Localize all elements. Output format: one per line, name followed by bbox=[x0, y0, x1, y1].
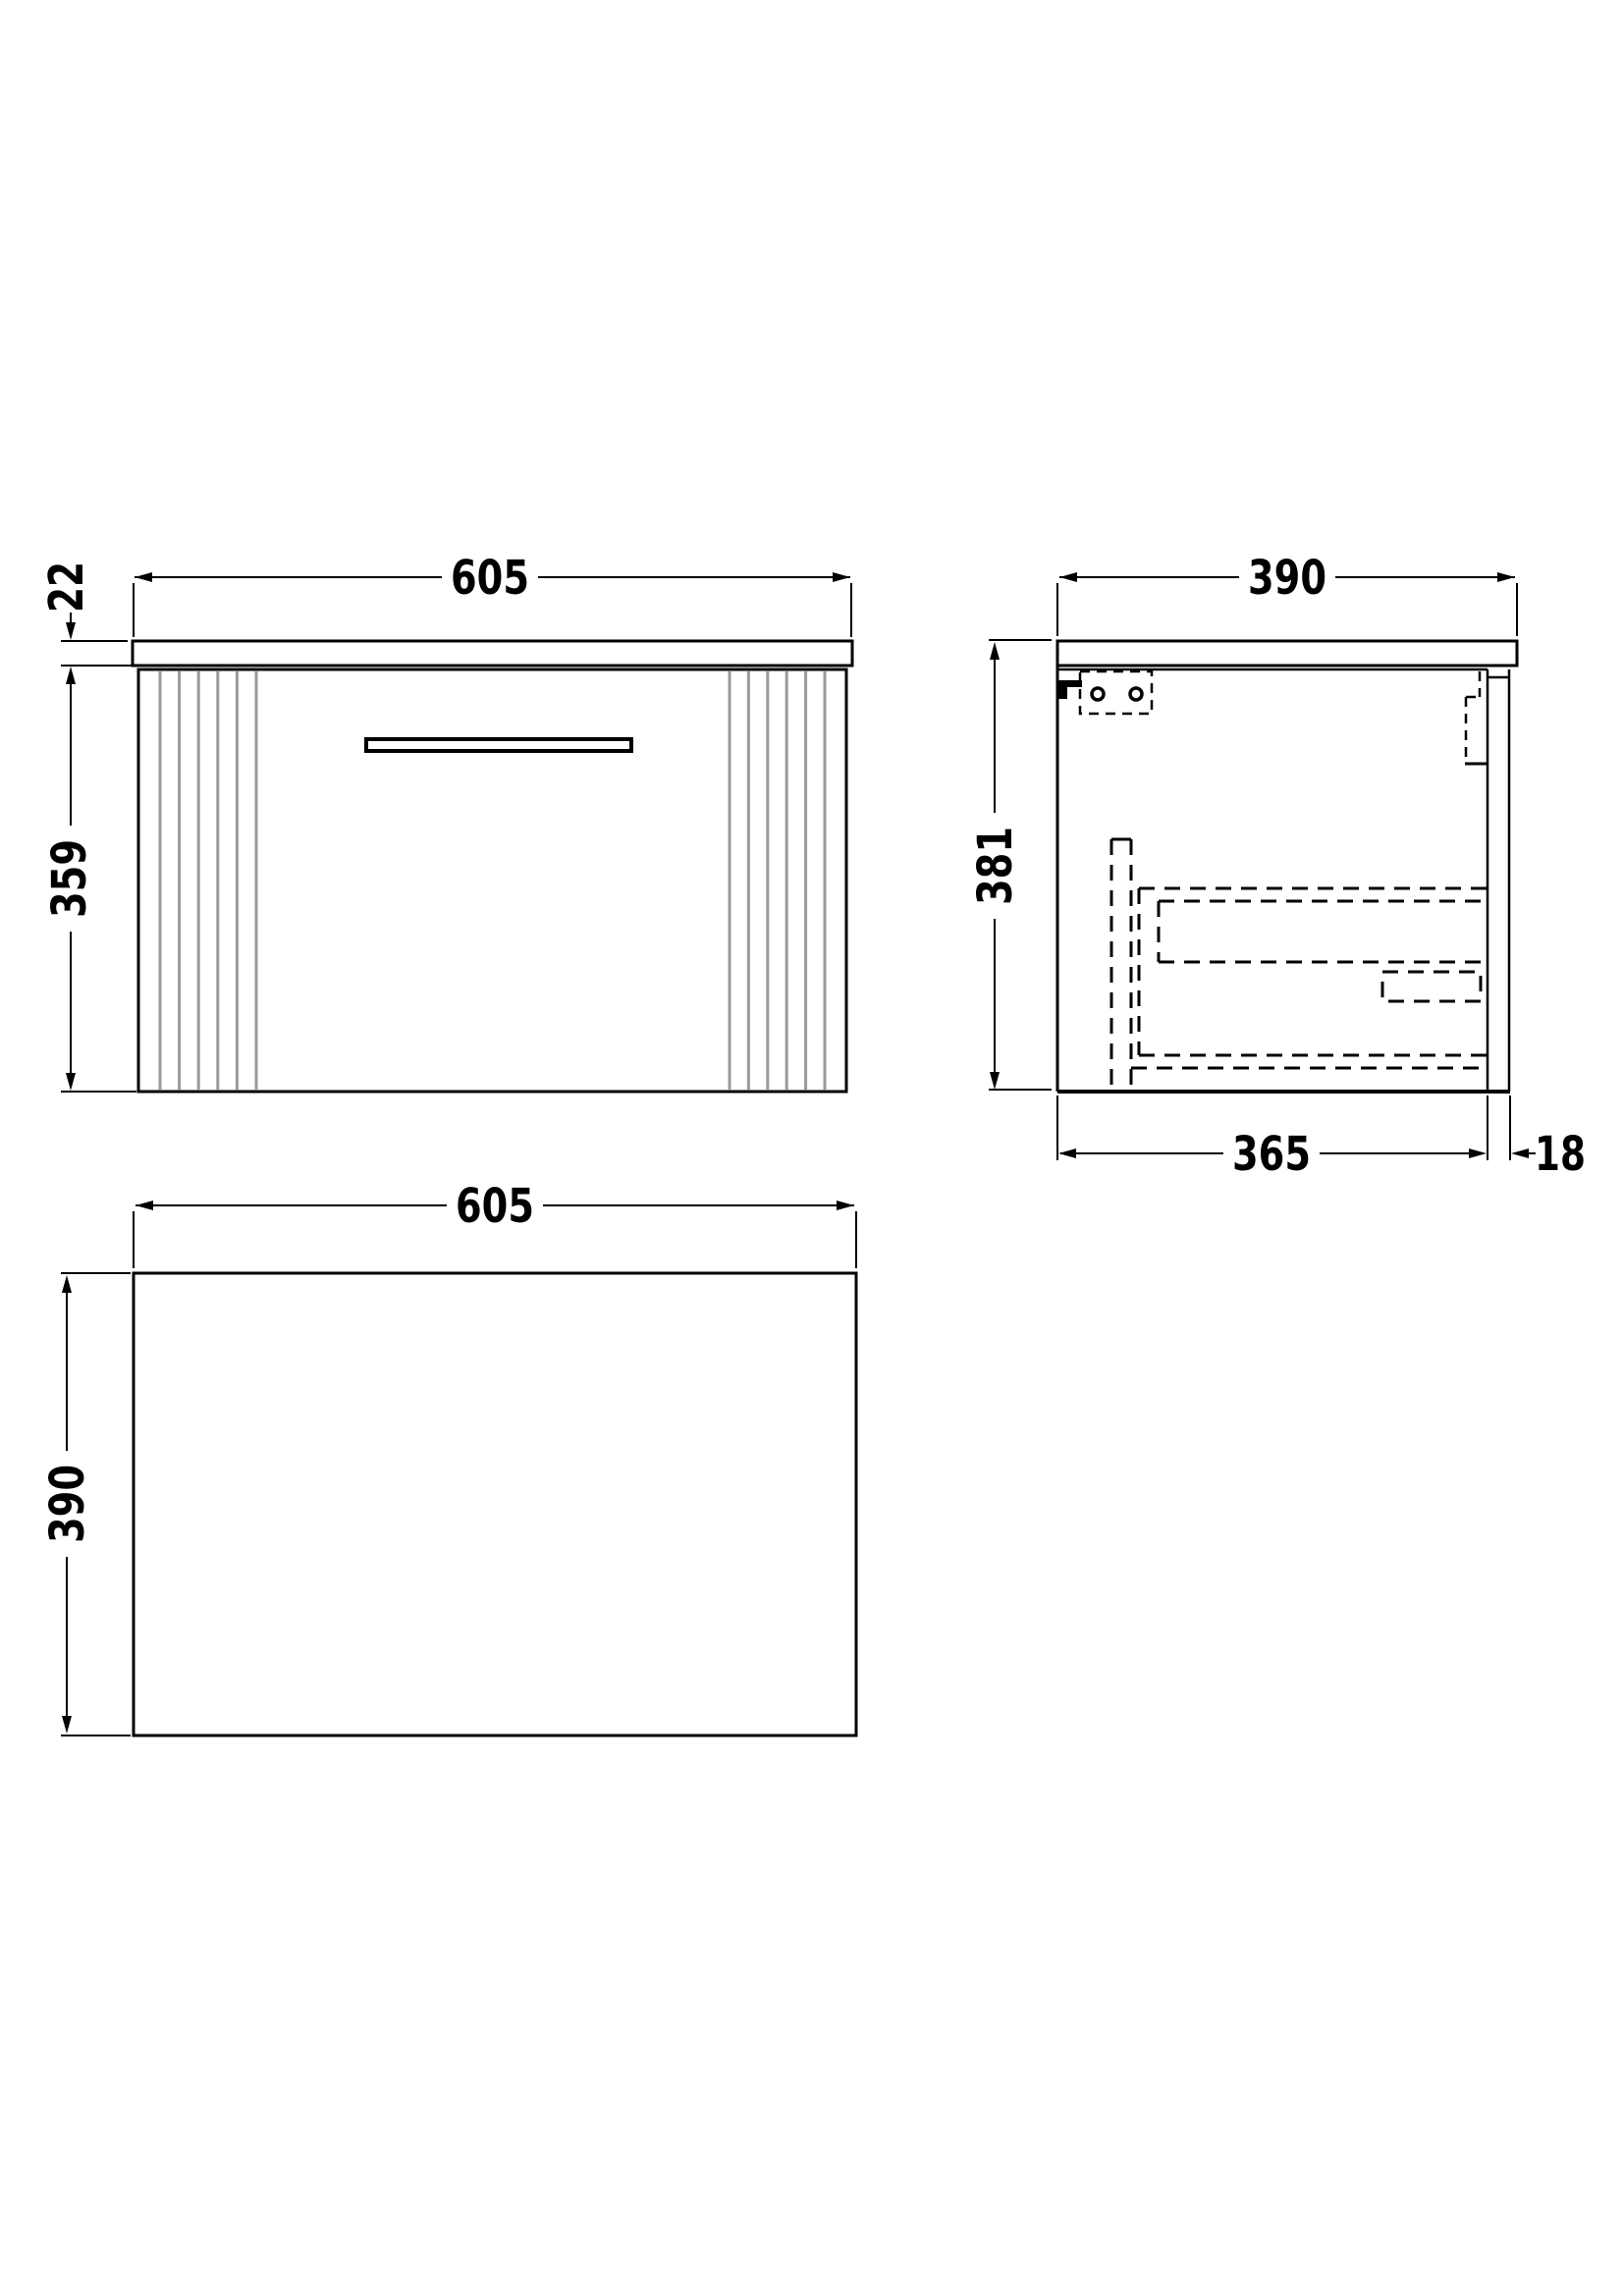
arrowhead-up bbox=[62, 1275, 72, 1293]
drawer-rail-hidden-outline bbox=[1159, 901, 1488, 962]
dim-front-worktop-thickness: 22 bbox=[39, 561, 136, 666]
runner-block-hidden-outline bbox=[1382, 972, 1481, 1001]
arrowhead-left-inward bbox=[1511, 1148, 1529, 1158]
drawing-sheet: 605 22 359 bbox=[0, 0, 1623, 2296]
wall-hanger-hook bbox=[1057, 680, 1082, 699]
dim-label-plan-depth: 390 bbox=[40, 1465, 95, 1543]
dim-side-depth: 390 bbox=[1057, 551, 1517, 636]
bracket-screw-hole-right bbox=[1130, 688, 1142, 700]
side-worktop bbox=[1057, 641, 1517, 666]
arrowhead-left bbox=[1058, 1148, 1076, 1158]
dim-plan-width: 605 bbox=[134, 1179, 856, 1268]
bracket-screw-hole-left bbox=[1092, 688, 1104, 700]
dim-label-worktop-thickness: 22 bbox=[39, 561, 94, 613]
dim-label-plan-width: 605 bbox=[456, 1179, 534, 1234]
dim-label-side-depth: 390 bbox=[1248, 551, 1326, 606]
arrowhead-down bbox=[66, 1073, 76, 1091]
arrowhead-down bbox=[62, 1716, 72, 1734]
arrowhead-right bbox=[1497, 572, 1515, 582]
arrowhead-down bbox=[66, 622, 76, 640]
dim-label-cabinet-height: 359 bbox=[42, 839, 97, 918]
dim-plan-depth: 390 bbox=[40, 1273, 131, 1735]
dim-label-internal-depth: 365 bbox=[1232, 1127, 1311, 1182]
dim-side-height: 381 bbox=[968, 640, 1052, 1090]
dim-label-front-width: 605 bbox=[451, 551, 529, 606]
dim-side-back-panel: 18 bbox=[1511, 1127, 1586, 1182]
plan-worktop-outline bbox=[134, 1273, 856, 1735]
arrowhead-right bbox=[1469, 1148, 1487, 1158]
dim-label-side-height: 381 bbox=[968, 827, 1023, 905]
extension-lines bbox=[61, 641, 136, 666]
dim-front-width: 605 bbox=[134, 551, 851, 637]
arrowhead-up bbox=[990, 642, 1000, 660]
plan-view bbox=[134, 1273, 856, 1735]
drawer-handle bbox=[366, 739, 631, 751]
drawer-runner-hidden-sides bbox=[1111, 839, 1131, 1090]
arrowhead-left bbox=[1059, 572, 1077, 582]
dim-side-internal-depth: 365 bbox=[1057, 1095, 1510, 1182]
arrowhead-right bbox=[837, 1201, 854, 1210]
front-cabinet-body bbox=[138, 669, 846, 1092]
dim-label-back-panel: 18 bbox=[1535, 1127, 1586, 1182]
front-worktop bbox=[133, 641, 852, 666]
dim-front-cabinet-height: 359 bbox=[42, 667, 136, 1092]
arrowhead-right bbox=[833, 572, 850, 582]
side-view bbox=[1057, 641, 1517, 1092]
arrowhead-up bbox=[66, 667, 76, 684]
arrowhead-down bbox=[990, 1072, 1000, 1090]
rear-bracket-hidden-outline bbox=[1466, 671, 1480, 762]
arrowhead-left bbox=[135, 1201, 153, 1210]
front-view bbox=[133, 641, 852, 1092]
side-back-panel bbox=[1488, 669, 1509, 1092]
arrowhead-left bbox=[135, 572, 152, 582]
